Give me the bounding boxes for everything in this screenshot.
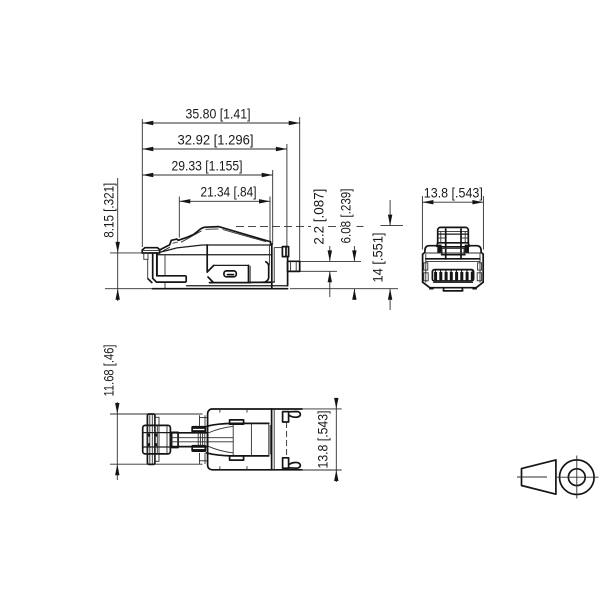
svg-text:2.2 [.087]: 2.2 [.087]	[310, 189, 326, 245]
svg-text:13.8 [.543]: 13.8 [.543]	[424, 185, 483, 201]
svg-text:21.34 [.84]: 21.34 [.84]	[201, 184, 257, 200]
svg-text:8.15 [.321]: 8.15 [.321]	[101, 183, 117, 238]
svg-text:13.8 [.543]: 13.8 [.543]	[314, 411, 330, 469]
svg-text:14 [.551]: 14 [.551]	[370, 233, 386, 283]
svg-text:6.08 [.239]: 6.08 [.239]	[338, 189, 354, 244]
svg-text:32.92 [1.296]: 32.92 [1.296]	[178, 131, 254, 147]
svg-text:11.68 [.46]: 11.68 [.46]	[100, 345, 116, 397]
svg-text:29.33 [1.155]: 29.33 [1.155]	[172, 157, 243, 173]
svg-text:35.80 [1.41]: 35.80 [1.41]	[186, 105, 251, 121]
